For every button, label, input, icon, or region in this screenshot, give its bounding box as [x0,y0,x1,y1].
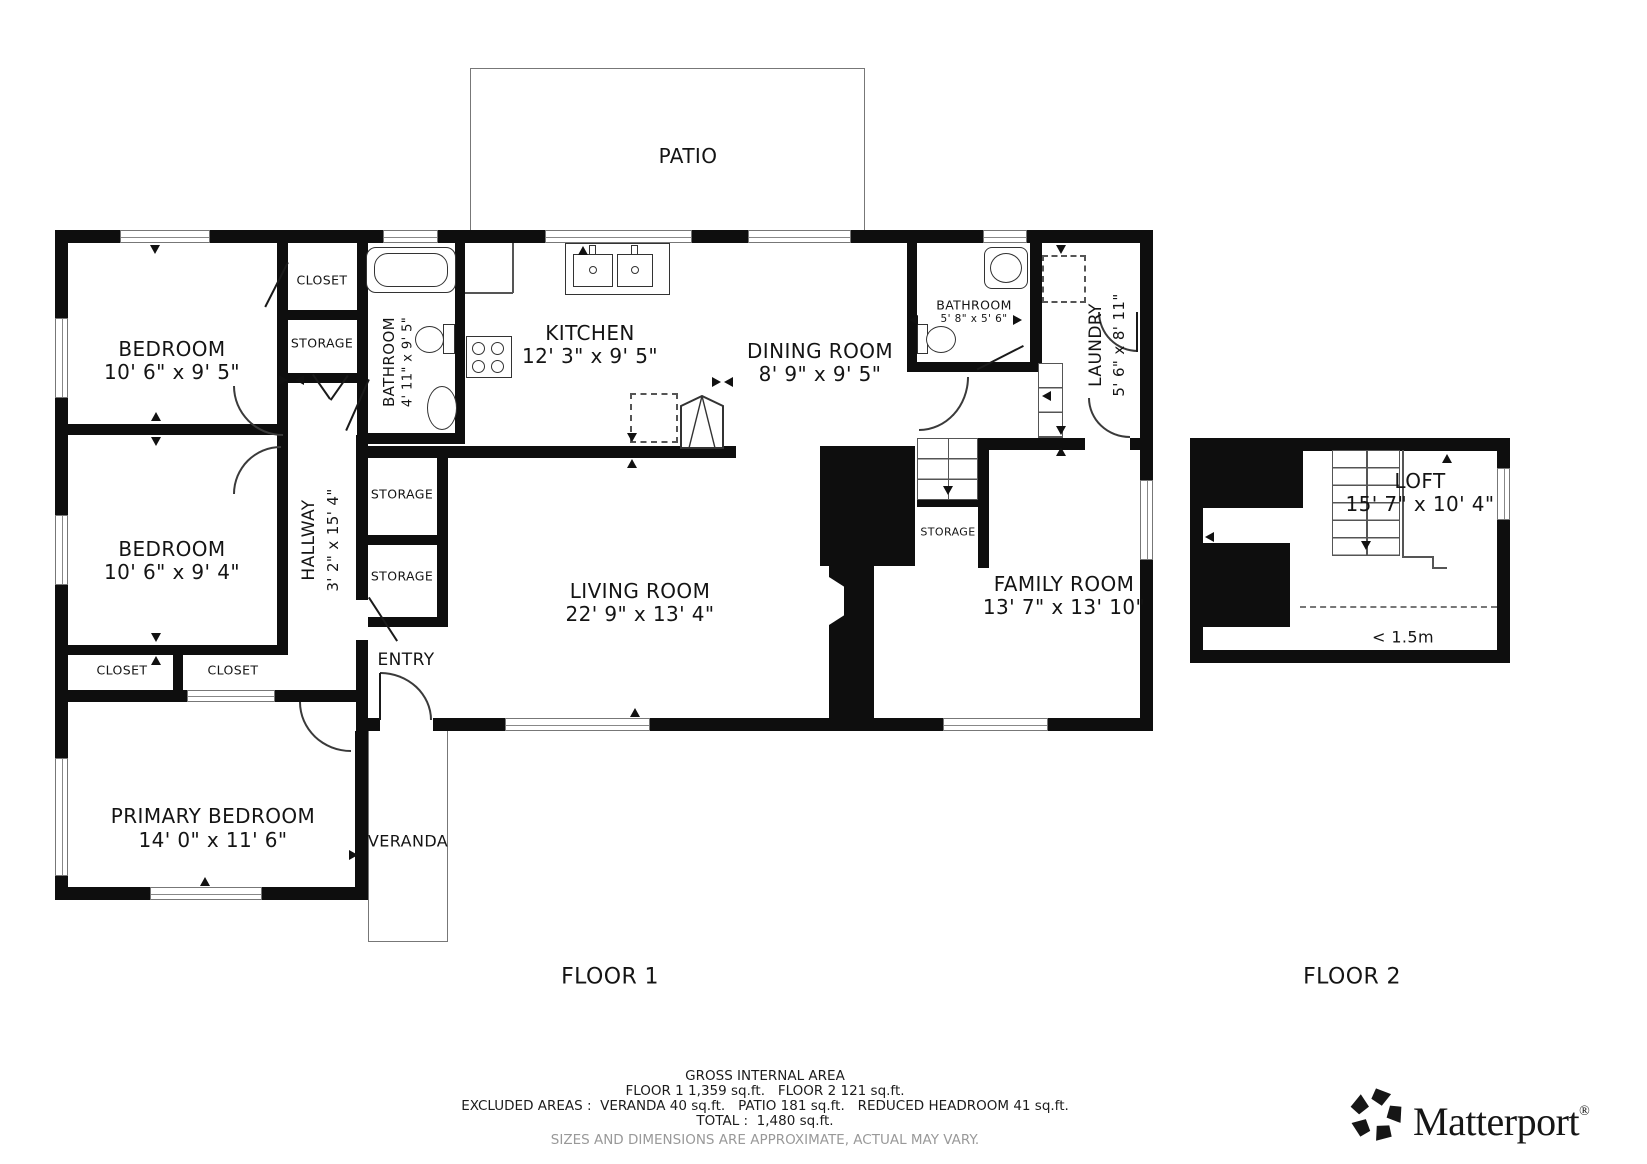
window [748,230,851,243]
window [943,718,1048,731]
room-label-closet-top: CLOSET [297,273,348,288]
matterport-wordmark: Matterport® [1413,1098,1589,1145]
wall-segment [356,435,368,600]
toilet-bowl-icon [415,326,444,353]
footer-title: GROSS INTERNAL AREA [0,1068,1530,1084]
window [1497,468,1510,520]
floor-plan-canvas: PATIO [0,0,1647,1164]
window [55,515,68,585]
room-label-bathroom-right: BATHROOM [936,298,1012,313]
room-label-hallway: HALLWAY [299,499,319,580]
headroom-note: < 1.5m [1372,628,1434,647]
dimension-arrow-icon [943,486,953,495]
room-label-closet-b: CLOSET [208,663,259,678]
decoration [1383,1102,1405,1126]
room-dims-family: 13' 7" x 13' 10" [983,595,1145,619]
dimension-arrow-icon [1056,426,1066,435]
room-dims-dining: 8' 9" x 9' 5" [759,362,882,386]
dimension-arrow-icon [150,245,160,254]
room-label-closet-a: CLOSET [97,663,148,678]
dimension-arrow-icon [151,633,161,642]
dimension-arrow-icon [200,877,210,886]
fixture-icon [472,342,485,355]
dimension-arrow-icon [349,850,358,860]
closet-sliding-door [187,690,275,702]
toilet-tank-icon [443,324,455,354]
window [55,758,68,876]
room-dims-bedroom-mid: 10' 6" x 9' 4" [104,560,240,584]
room-label-family: FAMILY ROOM [994,572,1135,596]
thin-line [465,292,513,294]
dimension-arrow-icon [151,437,161,446]
window [1140,480,1153,560]
dimension-arrow-icon [630,708,640,717]
chimney-mass [820,446,915,566]
thin-line [1432,567,1447,569]
window [120,230,210,243]
appliance-dashed-icon [1042,255,1086,303]
window [383,230,438,243]
dimension-arrow-icon [279,375,288,385]
room-label-bedroom-mid: BEDROOM [118,537,225,561]
registered-mark: ® [1579,1104,1589,1119]
decoration [1371,1088,1391,1105]
fixture-icon [472,360,485,373]
dimension-arrow-icon [151,656,161,665]
decoration [1369,1120,1395,1144]
door-arc-icon [919,377,969,431]
dimension-arrow-icon [1056,245,1066,254]
decoration [1348,1114,1374,1140]
room-label-laundry: LAUNDRY [1086,303,1106,387]
room-label-dining: DINING ROOM [747,339,893,363]
wall-segment [368,535,437,545]
dimension-arrow-icon [1205,532,1214,542]
decoration [1349,1092,1372,1116]
wall-segment [1190,438,1203,663]
room-dims-laundry: 5' 6" x 8' 11" [1110,293,1128,396]
decoration [1348,1088,1405,1144]
room-dims-bathroom-right: 5' 8" x 5' 6" [941,313,1008,325]
door-leaf-icon [379,673,381,720]
thin-line [1402,556,1434,558]
wall-segment [356,640,368,731]
dimension-arrow-icon [1013,315,1022,325]
wall-segment [978,438,989,568]
wall-segment [985,438,1085,450]
door-leaf-icon [1136,312,1138,352]
room-label-loft: LOFT [1394,469,1445,493]
wall-segment [368,617,448,627]
room-label-patio: PATIO [659,144,718,168]
wall-segment [437,446,448,627]
dimension-arrow-icon [295,375,304,385]
window [983,230,1027,243]
wall-segment [288,310,357,320]
dimension-arrow-icon [578,246,588,255]
dimension-arrow-icon [1442,454,1452,463]
wall-segment [1030,243,1042,372]
room-label-bathroom-left: BATHROOM [380,317,398,407]
reduced-headroom-mass [1203,543,1290,627]
door-arc-icon [299,702,351,752]
room-label-storage-b: STORAGE [371,569,433,584]
dimension-arrow-icon [627,433,637,442]
dimension-arrow-icon [1361,541,1371,550]
dimension-arrow-icon [712,377,721,387]
sink-icon [990,253,1022,283]
door-arc-icon [380,672,432,720]
pedestal-sink-icon [427,386,457,430]
wall-segment [357,433,465,444]
window [505,718,650,731]
room-label-storage-stairs: STORAGE [920,526,975,539]
decoration: Matterport [1413,1099,1579,1144]
room-dims-bathroom-left: 4' 11" x 9' 5" [401,317,416,407]
wall-segment [355,731,368,900]
wall-segment [68,645,288,655]
door-arc-icon [1088,398,1130,438]
reduced-headroom-mass [1203,451,1303,508]
door-arc-icon [233,446,281,494]
dimension-arrow-icon [1042,391,1051,401]
wall-segment [173,655,183,690]
toilet-bowl-icon [926,326,956,353]
wall-segment [907,243,917,372]
dimension-arrow-icon [1056,447,1066,456]
room-dims-kitchen: 12' 3" x 9' 5" [522,344,658,368]
bathtub-inner [374,253,448,287]
fixture-icon [491,360,504,373]
room-label-kitchen: KITCHEN [545,321,634,345]
room-label-living: LIVING ROOM [570,579,710,603]
pantry-icon [680,395,724,449]
footer-areas-line2: EXCLUDED AREAS : VERANDA 40 sq.ft. PATIO… [0,1098,1530,1114]
footer-areas-line1: FLOOR 1 1,359 sq.ft. FLOOR 2 121 sq.ft. [0,1083,1530,1099]
window [55,318,68,398]
window [545,230,692,243]
stove-icon [466,336,512,378]
dishwasher-dashed-icon [630,393,678,443]
wall-segment [907,362,1042,372]
wall-segment [1190,650,1510,663]
stairs-icon [917,438,978,500]
headroom-dashed-line [1300,606,1497,608]
room-label-veranda: VERANDA [368,832,448,851]
dimension-arrow-icon [909,315,918,325]
footer-disclaimer: SIZES AND DIMENSIONS ARE APPROXIMATE, AC… [0,1132,1530,1148]
faucet-icon [631,245,638,255]
footer-total: TOTAL : 1,480 sq.ft. [0,1113,1530,1129]
dimension-arrow-icon [724,377,733,387]
decoration [681,396,723,448]
room-label-storage-a: STORAGE [371,487,433,502]
floor1-caption: FLOOR 1 [561,965,659,990]
room-dims-bedroom-top: 10' 6" x 9' 5" [104,360,240,384]
window [150,887,262,900]
matterport-logo-icon [1347,1086,1405,1144]
fixture-icon [491,342,504,355]
fixture-icon [589,266,597,274]
room-dims-loft: 15' 7" x 10' 4" [1345,492,1494,516]
wall-segment [1130,438,1153,450]
faucet-icon [589,245,596,255]
room-dims-living: 22' 9" x 13' 4" [565,602,714,626]
floor2-caption: FLOOR 2 [1303,965,1401,990]
room-label-primary: PRIMARY BEDROOM [111,804,315,828]
dimension-arrow-icon [151,412,161,421]
fixture-icon [631,266,639,274]
thin-line [512,243,514,293]
room-label-entry: ENTRY [378,650,435,670]
room-label-storage-top: STORAGE [291,336,353,351]
dimension-arrow-icon [627,459,637,468]
room-label-bedroom-top: BEDROOM [118,337,225,361]
room-dims-hallway: 3' 2" x 15' 4" [324,488,342,591]
room-dims-primary: 14' 0" x 11' 6" [138,828,287,852]
